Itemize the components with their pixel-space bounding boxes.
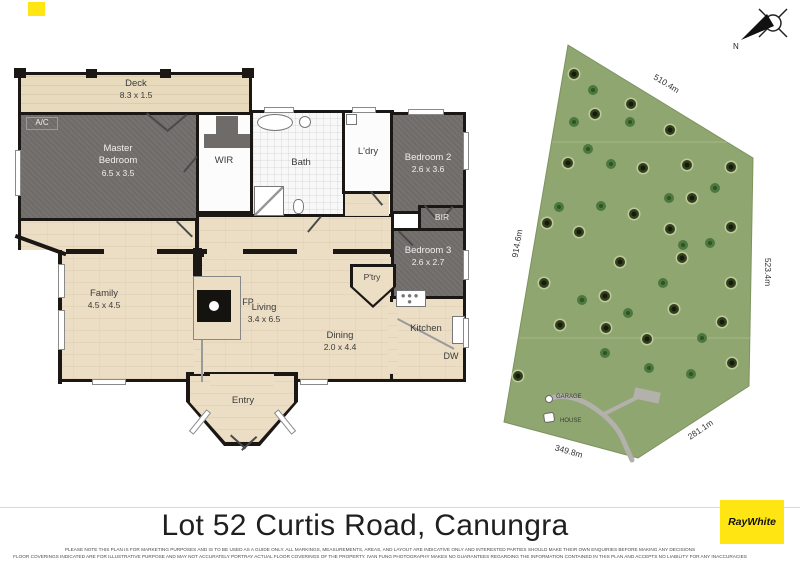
- window: [92, 379, 126, 385]
- brand-logo-text: RayWhite: [728, 516, 776, 528]
- window: [264, 107, 294, 113]
- shower-icon: [254, 186, 284, 216]
- tree-icon: [676, 252, 689, 265]
- window: [352, 107, 376, 113]
- tree-icon: [716, 316, 729, 329]
- fern-icon: [569, 117, 579, 127]
- tree-icon: [541, 217, 554, 230]
- fern-icon: [644, 363, 654, 373]
- label-bir: BIR: [435, 212, 449, 223]
- dim-top: 510.4m: [652, 72, 681, 95]
- wardrobe-icon: [204, 134, 250, 148]
- half-wall-line: [201, 340, 203, 382]
- page-title: Lot 52 Curtis Road, Canungra: [0, 509, 730, 543]
- label-master-bedroom: Master Bedroom6.5 x 3.5: [87, 143, 149, 179]
- window: [15, 150, 21, 196]
- basin-icon: [299, 116, 311, 128]
- tree-icon: [538, 277, 551, 290]
- window: [58, 310, 65, 350]
- floorplan-page: Deck8.3 x 1.5 Master Bedroom6.5 x 3.5 A/…: [0, 0, 800, 566]
- fern-icon: [678, 240, 688, 250]
- site-plan: GARAGE HOUSE 510.4m 523.4m 281.1m 349.8m…: [492, 22, 800, 472]
- disclaimer-line2: FLOOR COVERINGS INDICATED ARE FOR ILLUST…: [0, 554, 760, 559]
- dim-left: 914.6m: [510, 229, 525, 259]
- fern-icon: [596, 201, 606, 211]
- house-label: HOUSE: [560, 418, 581, 424]
- yellow-square-marker: [28, 2, 45, 16]
- garage-marker: [546, 396, 553, 403]
- tree-icon: [686, 192, 699, 205]
- tree-icon: [641, 333, 654, 346]
- fern-icon: [664, 193, 674, 203]
- footer-divider: [0, 507, 800, 508]
- label-bath: Bath: [291, 157, 311, 169]
- tree-icon: [614, 256, 627, 269]
- tree-icon: [637, 162, 650, 175]
- window: [300, 379, 328, 385]
- fern-icon: [554, 202, 564, 212]
- disclaimer-line1: PLEASE NOTE THIS PLAN IS FOR MARKETING P…: [0, 547, 760, 552]
- entry-opening: [210, 374, 274, 386]
- deck-post: [160, 69, 171, 78]
- fern-icon: [606, 159, 616, 169]
- label-bedroom2: Bedroom 22.6 x 3.6: [405, 152, 451, 175]
- label-deck: Deck8.3 x 1.5: [120, 78, 153, 101]
- label-entry: Entry: [232, 395, 254, 407]
- tree-icon: [725, 277, 738, 290]
- label-dishwasher: DW: [444, 351, 459, 363]
- fern-icon: [658, 278, 668, 288]
- tree-icon: [725, 161, 738, 174]
- window: [463, 250, 469, 280]
- deck-post: [242, 68, 254, 78]
- bathtub-icon: [257, 114, 293, 131]
- house-marker: [543, 412, 554, 422]
- tree-icon: [599, 290, 612, 303]
- tree-icon: [600, 322, 613, 335]
- fern-icon: [710, 183, 720, 193]
- north-arrow-icon: [741, 14, 774, 40]
- fern-icon: [623, 308, 633, 318]
- tree-icon: [589, 108, 602, 121]
- wall-stub: [243, 249, 297, 254]
- window: [408, 109, 444, 115]
- fireplace-flue-icon: [209, 301, 219, 311]
- label-laundry: L'dry: [358, 146, 378, 158]
- tree-icon: [668, 303, 681, 316]
- label-fireplace: FP: [242, 297, 254, 309]
- tree-icon: [681, 159, 694, 172]
- fern-icon: [577, 295, 587, 305]
- compass: N: [725, 5, 795, 53]
- tree-icon: [664, 223, 677, 236]
- fern-icon: [583, 144, 593, 154]
- label-family: Family4.5 x 4.5: [88, 288, 121, 311]
- deck-post: [86, 69, 97, 78]
- label-wir: WIR: [215, 155, 233, 167]
- label-bedroom3: Bedroom 32.6 x 2.7: [405, 245, 451, 268]
- stove-icon: [396, 290, 426, 307]
- brand-logo: RayWhite: [720, 500, 784, 544]
- dim-right: 523.4m: [763, 258, 773, 286]
- garage-label: GARAGE: [556, 394, 582, 400]
- family-left-notch: [8, 250, 62, 384]
- wall-stub: [333, 249, 394, 254]
- fern-icon: [686, 369, 696, 379]
- dim-bottom: 349.8m: [554, 442, 584, 459]
- tree-icon: [512, 370, 525, 383]
- label-pantry: P'try: [364, 272, 381, 283]
- window: [58, 264, 65, 298]
- tree-icon: [726, 357, 739, 370]
- deck-post: [14, 68, 26, 78]
- tree-icon: [628, 208, 641, 221]
- tree-icon: [554, 319, 567, 332]
- window: [463, 318, 469, 348]
- compass-n-label: N: [733, 42, 739, 51]
- label-dining: Dining2.0 x 4.4: [324, 330, 357, 353]
- laundry-tub-icon: [346, 114, 357, 125]
- fern-icon: [600, 348, 610, 358]
- wardrobe-icon: [216, 116, 238, 134]
- dining-kitchen-opening: [388, 302, 398, 374]
- label-ac: A/C: [35, 118, 48, 128]
- tree-icon: [562, 157, 575, 170]
- tree-icon: [664, 124, 677, 137]
- window: [463, 132, 469, 170]
- tree-icon: [725, 221, 738, 234]
- tree-icon: [625, 98, 638, 111]
- fern-icon: [697, 333, 707, 343]
- fern-icon: [705, 238, 715, 248]
- label-kitchen: Kitchen: [410, 323, 442, 335]
- wall-stub: [66, 249, 104, 254]
- fern-icon: [625, 117, 635, 127]
- tree-icon: [568, 68, 581, 81]
- fern-icon: [588, 85, 598, 95]
- toilet-icon: [293, 199, 304, 214]
- tree-icon: [573, 226, 586, 239]
